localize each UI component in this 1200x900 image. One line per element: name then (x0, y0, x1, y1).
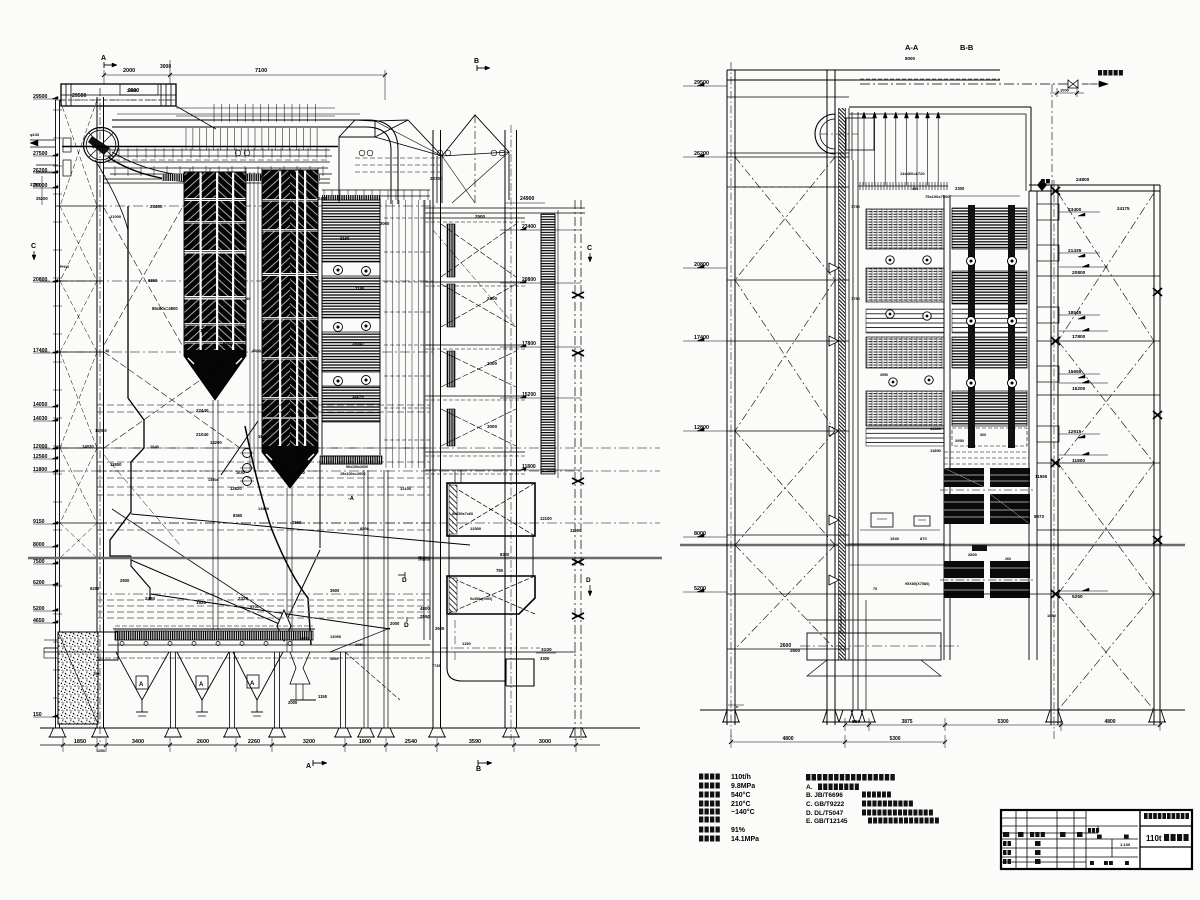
svg-text:2900: 2900 (128, 88, 139, 94)
svg-text:2550: 2550 (420, 614, 431, 619)
svg-text:A: A (250, 681, 255, 687)
svg-text:540°C: 540°C (731, 791, 751, 799)
svg-text:2260: 2260 (248, 739, 260, 745)
svg-text:B: B (474, 58, 479, 65)
svg-text:2800: 2800 (968, 552, 978, 557)
svg-text:8360: 8360 (233, 513, 243, 518)
svg-text:14270: 14270 (352, 394, 364, 399)
svg-text:750: 750 (496, 568, 504, 573)
svg-text:D. DL/T5047: D. DL/T5047 (806, 810, 844, 817)
svg-text:C: C (31, 243, 36, 250)
svg-text:2600: 2600 (197, 739, 209, 745)
svg-text:1:100: 1:100 (1120, 842, 1131, 847)
svg-text:A-A: A-A (905, 43, 919, 52)
svg-text:40: 40 (246, 296, 251, 301)
svg-text:2900: 2900 (300, 636, 310, 641)
svg-text:11890: 11890 (930, 448, 942, 453)
svg-text:2500: 2500 (475, 214, 486, 219)
svg-text:110t: 110t (1146, 834, 1162, 843)
svg-text:2000: 2000 (390, 621, 400, 626)
svg-text:A: A (306, 763, 311, 770)
svg-text:A: A (139, 682, 144, 688)
svg-text:23400: 23400 (150, 204, 163, 209)
svg-text:75: 75 (873, 587, 877, 591)
svg-text:-A: -A (348, 496, 354, 502)
svg-text:4800: 4800 (420, 606, 431, 611)
svg-text:4800: 4800 (1104, 719, 1115, 725)
svg-text:9x350x(7x60): 9x350x(7x60) (470, 597, 493, 601)
svg-text:1850: 1850 (74, 739, 86, 745)
svg-text:7735: 7735 (432, 664, 440, 668)
svg-text:11900: 11900 (570, 528, 582, 533)
svg-text:B-B: B-B (960, 43, 974, 52)
svg-text:15200: 15200 (1072, 386, 1086, 392)
svg-text:91%: 91% (731, 827, 746, 834)
svg-text:1800: 1800 (359, 739, 371, 745)
svg-text:2190: 2190 (340, 236, 350, 241)
svg-text:7750: 7750 (851, 204, 861, 209)
svg-text:2190: 2190 (355, 286, 365, 291)
svg-text:11800: 11800 (1072, 458, 1085, 464)
svg-text:22700: 22700 (430, 176, 443, 181)
svg-text:14x460=6720: 14x460=6720 (900, 171, 925, 176)
svg-text:9.8MPa: 9.8MPa (731, 783, 755, 790)
svg-text:3000: 3000 (380, 221, 390, 226)
svg-text:D: D (402, 577, 407, 584)
svg-text:85x60x=4800: 85x60x=4800 (152, 306, 178, 311)
svg-text:PH10: PH10 (60, 265, 69, 269)
svg-text:3500: 3500 (330, 588, 340, 593)
svg-text:13850: 13850 (258, 506, 270, 511)
svg-text:450: 450 (912, 187, 918, 191)
svg-text:18040: 18040 (352, 341, 364, 346)
svg-text:6200: 6200 (90, 586, 100, 591)
svg-text:8000: 8000 (905, 56, 916, 61)
svg-text:40: 40 (310, 368, 315, 373)
svg-text:21040: 21040 (196, 432, 209, 437)
svg-text:40: 40 (105, 349, 109, 353)
svg-text:-4A: -4A (300, 451, 307, 456)
svg-text:14200: 14200 (210, 440, 222, 445)
svg-text:~140°C: ~140°C (731, 808, 755, 816)
svg-text:20800: 20800 (522, 277, 536, 283)
svg-text:2320: 2320 (238, 596, 249, 601)
svg-text:2600: 2600 (790, 648, 801, 653)
svg-text:7100: 7100 (255, 68, 267, 74)
svg-text:210°C: 210°C (731, 800, 751, 808)
svg-text:3400: 3400 (132, 739, 144, 745)
svg-text:24800: 24800 (1076, 177, 1090, 183)
svg-text:D: D (586, 577, 591, 584)
svg-text:1050: 1050 (97, 749, 105, 753)
svg-text:3875: 3875 (901, 719, 912, 725)
svg-text:C: C (587, 245, 592, 252)
svg-text:2750: 2750 (30, 182, 41, 187)
svg-text:17800: 17800 (1072, 334, 1086, 340)
svg-text:17800: 17800 (522, 341, 536, 347)
svg-text:3300: 3300 (540, 656, 550, 661)
svg-text:18545: 18545 (1068, 310, 1082, 316)
svg-text:29500: 29500 (72, 93, 87, 99)
svg-text:2600: 2600 (435, 626, 445, 631)
svg-text:20800: 20800 (1072, 270, 1086, 276)
svg-text:E. GB/T12145: E. GB/T12145 (806, 818, 848, 825)
svg-text:3590: 3590 (469, 739, 481, 745)
svg-text:13050: 13050 (330, 634, 342, 639)
svg-text:21435: 21435 (1068, 248, 1082, 254)
svg-text:1940: 1940 (890, 536, 900, 541)
svg-text:1640: 1640 (258, 434, 268, 439)
svg-text:1000: 1000 (1060, 88, 1070, 93)
svg-text:2400: 2400 (487, 296, 498, 301)
svg-text:850: 850 (852, 719, 860, 725)
svg-text:1520: 1520 (196, 600, 207, 605)
svg-text:4000: 4000 (252, 348, 262, 353)
svg-text:1050: 1050 (355, 643, 363, 647)
svg-text:B: B (476, 766, 481, 773)
svg-text:14030: 14030 (82, 444, 94, 449)
svg-text:2950: 2950 (955, 438, 965, 443)
svg-text:2000: 2000 (288, 700, 298, 705)
svg-text:24900: 24900 (520, 196, 535, 202)
svg-text:1850: 1850 (1047, 613, 1057, 618)
svg-text:12800: 12800 (930, 426, 942, 431)
svg-text:18440: 18440 (200, 328, 213, 333)
svg-text:5300: 5300 (997, 719, 1008, 725)
svg-text:12915: 12915 (1068, 429, 1082, 435)
svg-text:5300: 5300 (889, 736, 900, 742)
svg-text:11800: 11800 (522, 464, 536, 470)
svg-text:14060: 14060 (95, 428, 107, 433)
svg-text:11800: 11800 (110, 462, 122, 467)
svg-text:3950: 3950 (880, 373, 888, 377)
svg-text:12500: 12500 (470, 526, 482, 531)
svg-text:870: 870 (920, 536, 927, 541)
svg-text:预留位: 预留位 (418, 555, 430, 561)
svg-text:3200: 3200 (303, 739, 315, 745)
svg-text:6860: 6860 (148, 278, 158, 283)
svg-text:A.: A. (806, 784, 813, 791)
svg-text:90x100x2600: 90x100x2600 (346, 465, 368, 469)
svg-text:7750: 7750 (851, 296, 861, 301)
svg-text:3000: 3000 (487, 424, 498, 429)
svg-text:150: 150 (93, 672, 99, 676)
svg-text:95X80(X7580): 95X80(X7580) (905, 582, 930, 586)
svg-text:2000: 2000 (123, 68, 135, 74)
svg-text:260: 260 (1005, 557, 1011, 561)
svg-text:8x650x7x60: 8x650x7x60 (452, 512, 473, 516)
svg-text:15655: 15655 (1068, 369, 1082, 375)
svg-text:25200: 25200 (36, 196, 48, 201)
svg-text:21000: 21000 (110, 214, 122, 219)
svg-text:B. JB/T6696: B. JB/T6696 (806, 792, 843, 799)
svg-text:A: A (101, 55, 106, 62)
svg-text:8300: 8300 (500, 552, 510, 557)
svg-text:3000: 3000 (487, 361, 498, 366)
svg-text:24175: 24175 (1117, 206, 1130, 211)
svg-text:5700: 5700 (250, 604, 260, 609)
svg-text:15200: 15200 (522, 392, 536, 398)
svg-text:14.1MPa: 14.1MPa (731, 836, 759, 843)
svg-text:2300: 2300 (955, 186, 965, 191)
svg-text:23400: 23400 (522, 224, 536, 230)
svg-text:1150: 1150 (462, 641, 471, 646)
svg-text:2480: 2480 (145, 596, 156, 601)
svg-text:12100: 12100 (540, 516, 552, 521)
svg-text:75x100x7500: 75x100x7500 (925, 194, 950, 199)
svg-text:1050: 1050 (330, 657, 338, 661)
svg-text:1150: 1150 (318, 694, 328, 699)
svg-text:3000: 3000 (160, 64, 171, 70)
svg-text:6800: 6800 (223, 341, 234, 346)
svg-text:2560: 2560 (292, 520, 302, 525)
svg-text:2400: 2400 (318, 196, 328, 201)
svg-text:A: A (199, 682, 204, 688)
svg-text:φ133: φ133 (30, 133, 39, 137)
svg-text:23400: 23400 (1068, 207, 1082, 213)
svg-text:300: 300 (980, 433, 986, 437)
svg-text:D: D (404, 622, 409, 629)
svg-text:2500: 2500 (120, 578, 130, 583)
svg-text:1350a: 1350a (208, 478, 219, 482)
svg-text:5250: 5250 (1072, 594, 1083, 600)
svg-text:4800: 4800 (782, 736, 793, 742)
svg-text:110t/h: 110t/h (731, 774, 751, 781)
svg-text:8973: 8973 (1034, 514, 1045, 519)
svg-text:2540: 2540 (405, 739, 417, 745)
svg-text:15x100x=2600: 15x100x=2600 (340, 472, 365, 476)
svg-text:C. GB/T9222: C. GB/T9222 (806, 801, 845, 808)
svg-text:3000: 3000 (539, 739, 551, 745)
